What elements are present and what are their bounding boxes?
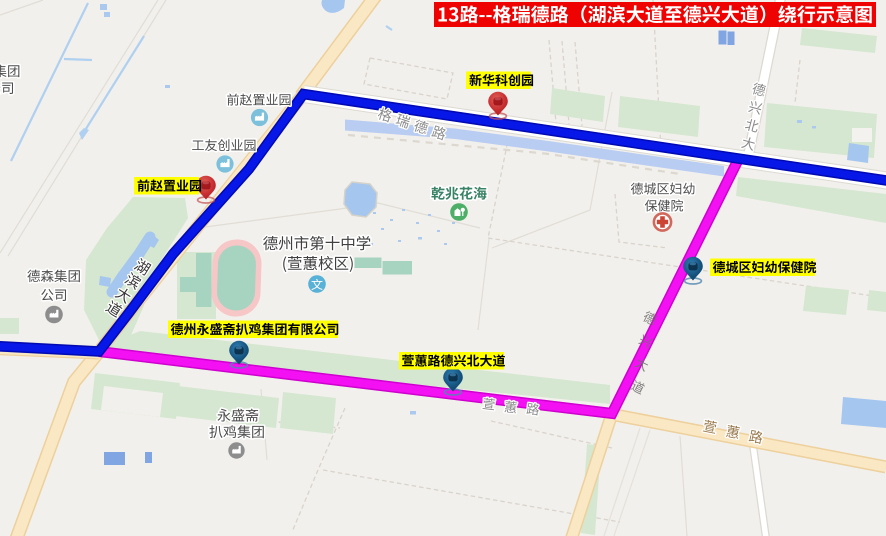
svg-text:前赵置业园: 前赵置业园 (137, 176, 202, 195)
svg-text:前赵置业园: 前赵置业园 (226, 90, 291, 109)
svg-text:萱蕙路德兴北大道: 萱蕙路德兴北大道 (402, 351, 506, 370)
svg-text:德城区妇幼保健院: 德城区妇幼保健院 (713, 257, 817, 276)
svg-text:文: 文 (311, 276, 323, 293)
svg-text:德州永盛斋扒鸡集团有限公司: 德州永盛斋扒鸡集团有限公司 (171, 319, 340, 338)
svg-text:13路--格瑞德路（湖滨大道至德兴大道）绕行示意图: 13路--格瑞德路（湖滨大道至德兴大道）绕行示意图 (437, 1, 873, 28)
svg-text:德森集团: 德森集团 (27, 265, 81, 285)
svg-text:公司: 公司 (41, 284, 68, 304)
svg-text:萱: 萱 (481, 393, 496, 413)
svg-text:公司: 公司 (0, 77, 15, 97)
svg-text:扒鸡集团: 扒鸡集团 (209, 422, 265, 442)
svg-text:德州市第十中学: 德州市第十中学 (263, 232, 372, 254)
svg-text:乾兆花海: 乾兆花海 (431, 184, 487, 204)
svg-text:保健院: 保健院 (644, 196, 683, 215)
svg-text:新华科创园: 新华科创园 (469, 70, 534, 89)
svg-text:工友创业园: 工友创业园 (191, 135, 256, 154)
svg-text:路: 路 (525, 398, 540, 418)
svg-text:蕙: 蕙 (503, 396, 518, 416)
svg-text:(萱蕙校区): (萱蕙校区) (282, 252, 354, 274)
